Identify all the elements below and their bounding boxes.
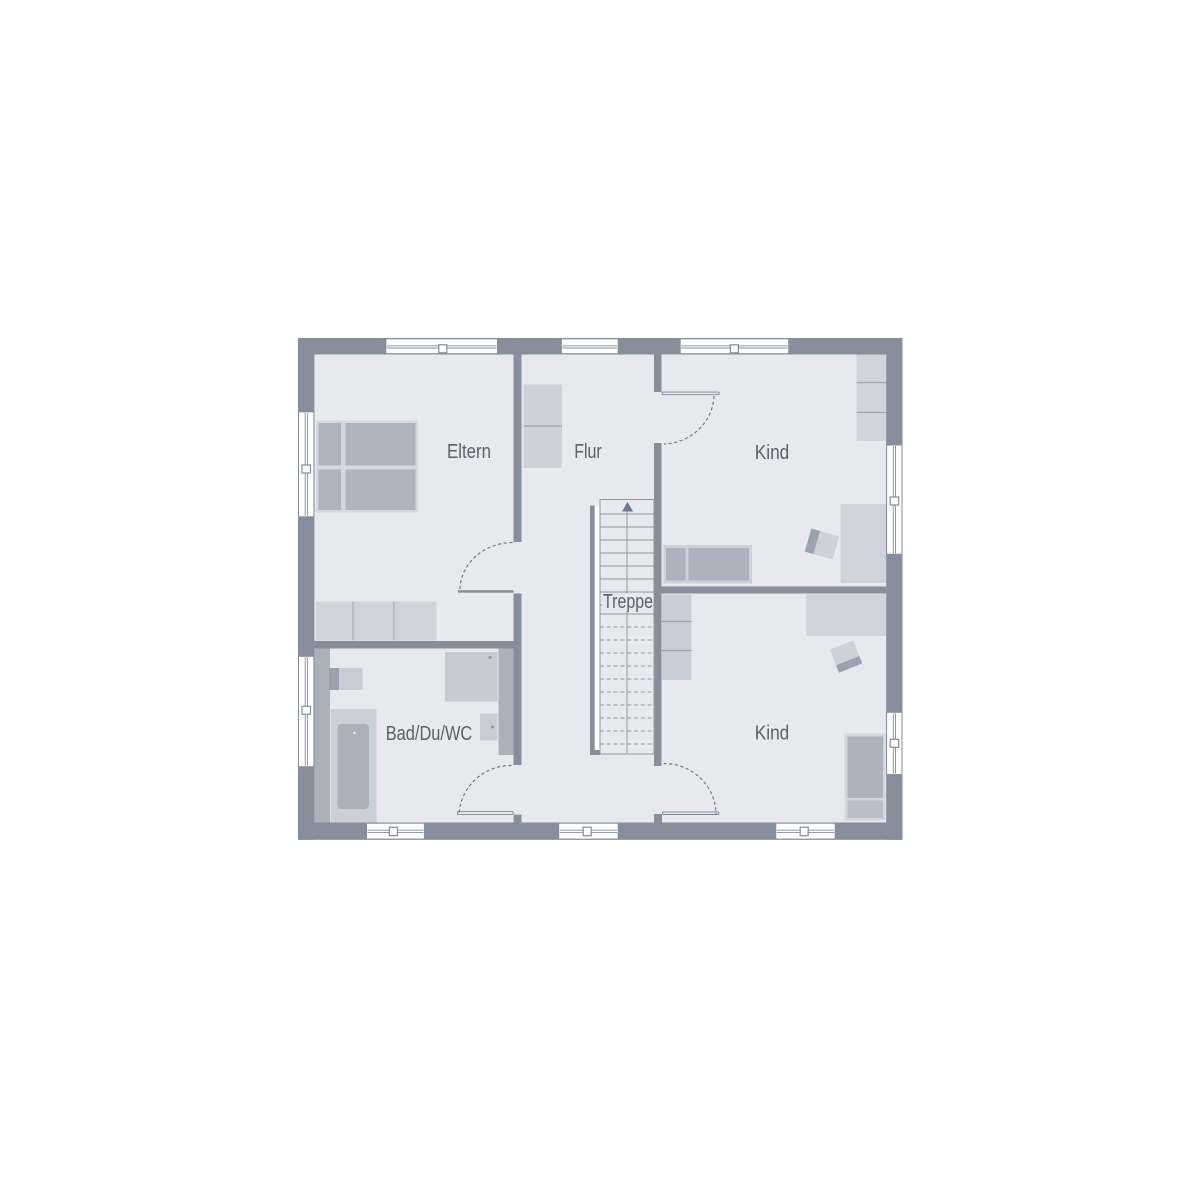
svg-text:Treppe: Treppe [603, 591, 653, 613]
svg-text:Bad/Du/WC: Bad/Du/WC [386, 723, 473, 745]
svg-text:Flur: Flur [574, 441, 602, 463]
svg-text:Kind: Kind [755, 723, 790, 745]
svg-text:Eltern: Eltern [447, 441, 491, 463]
svg-text:Kind: Kind [755, 442, 790, 464]
